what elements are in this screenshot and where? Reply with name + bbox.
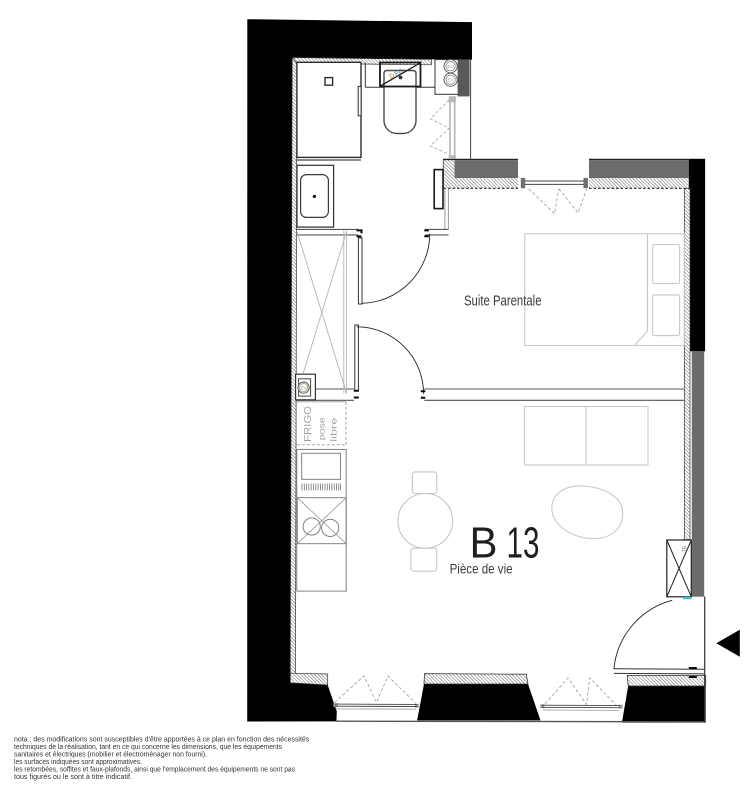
svg-text:Suite Parentale: Suite Parentale bbox=[464, 293, 542, 310]
svg-text:techniques de la réalisation,: techniques de la réalisation, tant en ce… bbox=[14, 744, 283, 751]
svg-text:nota : des modifications sont: nota : des modifications sont susceptibl… bbox=[14, 737, 310, 744]
svg-text:libre: libre bbox=[329, 417, 339, 441]
svg-text:TE: TE bbox=[682, 545, 688, 552]
svg-text:EU: EU bbox=[301, 385, 307, 390]
svg-text:EV: EV bbox=[448, 78, 455, 83]
svg-text:13: 13 bbox=[507, 519, 540, 568]
svg-text:sanitaires et électriques (mob: sanitaires et électriques (mobilier et é… bbox=[14, 752, 207, 759]
svg-text:les surfaces indiquées sont ap: les surfaces indiquées sont approximativ… bbox=[14, 759, 142, 766]
svg-text:FRIGO: FRIGO bbox=[302, 406, 314, 442]
svg-text:Pièce de vie: Pièce de vie bbox=[450, 562, 513, 577]
svg-text:B: B bbox=[470, 519, 498, 568]
svg-text:les retombées, soffites et fau: les retombées, soffites et faux-plafonds… bbox=[14, 767, 296, 774]
svg-text:EU: EU bbox=[447, 64, 453, 69]
svg-text:pose: pose bbox=[317, 417, 327, 440]
svg-text:tous figurés ou le sont à titr: tous figurés ou le sont à titre indicati… bbox=[14, 774, 132, 781]
